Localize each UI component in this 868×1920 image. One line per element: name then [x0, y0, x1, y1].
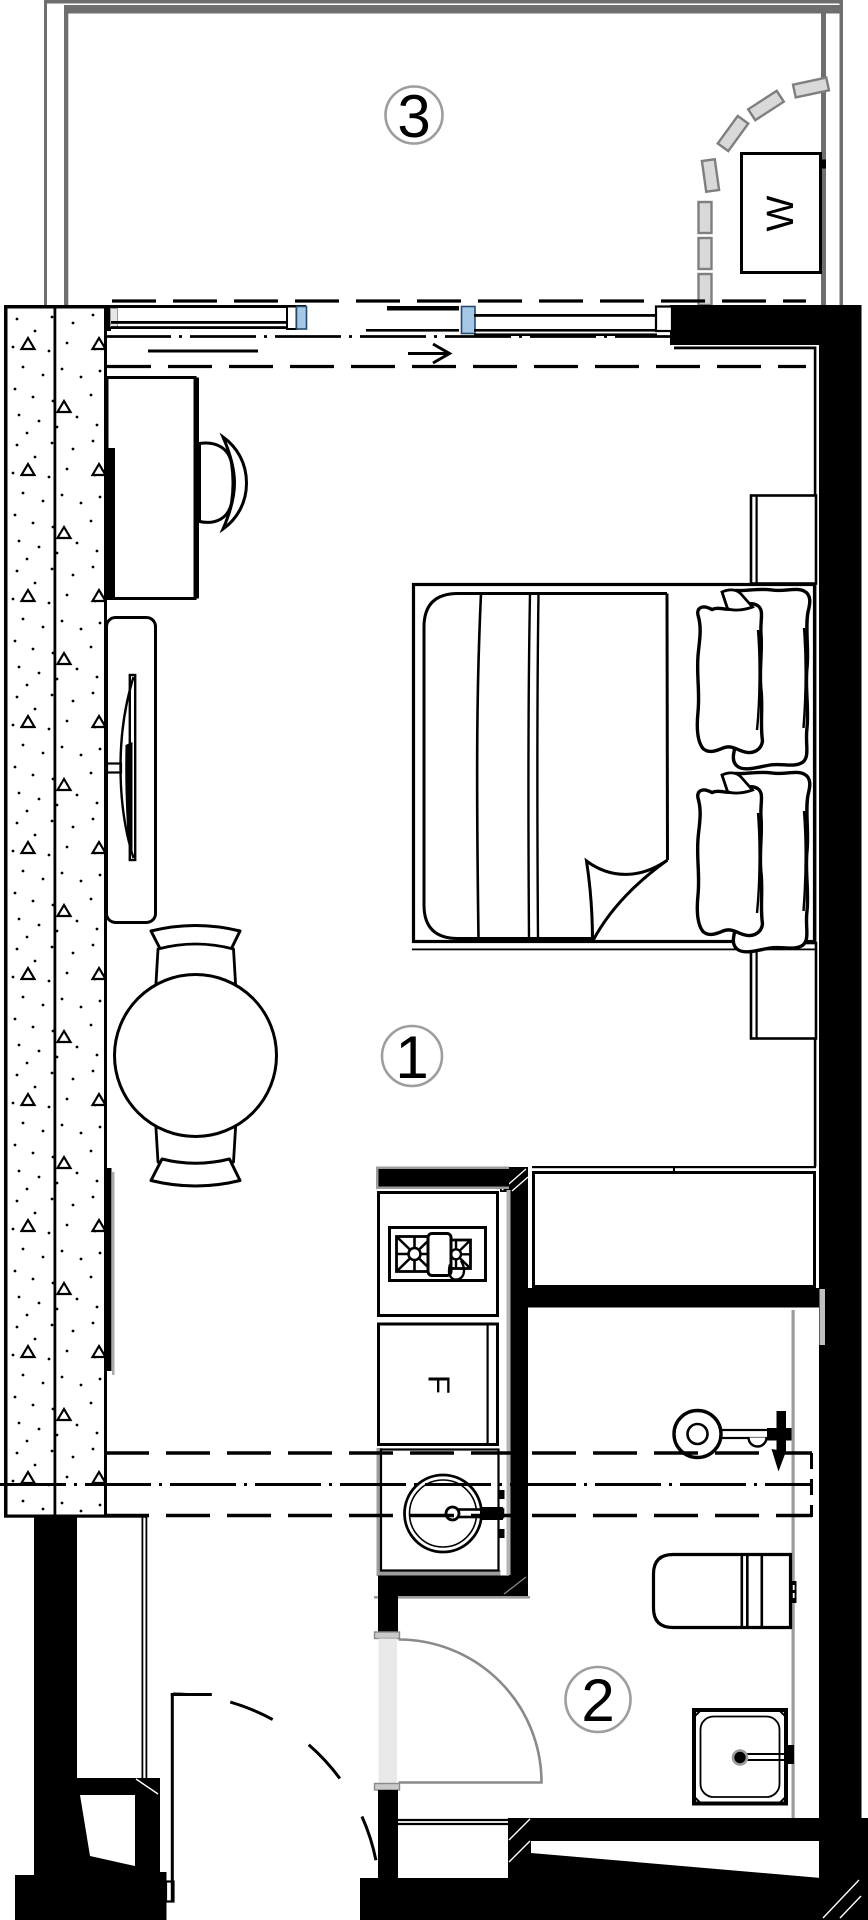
- svg-text:2: 2: [581, 1667, 614, 1734]
- svg-text:1: 1: [395, 1024, 428, 1091]
- svg-text:3: 3: [397, 83, 430, 150]
- svg-text:W: W: [760, 195, 802, 231]
- svg-text:F: F: [422, 1375, 457, 1394]
